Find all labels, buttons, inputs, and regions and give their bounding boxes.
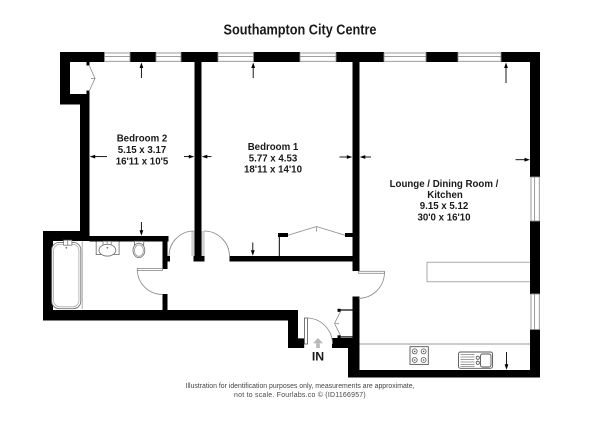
svg-text:9.15 x 5.12: 9.15 x 5.12	[420, 201, 468, 212]
svg-text:Southampton City Centre: Southampton City Centre	[224, 23, 377, 39]
svg-text:Bedroom 2: Bedroom 2	[117, 134, 168, 145]
svg-text:Bedroom 1: Bedroom 1	[248, 142, 299, 153]
svg-text:Kitchen: Kitchen	[427, 190, 463, 201]
svg-text:18'11 x 14'10: 18'11 x 14'10	[244, 164, 302, 175]
svg-text:5.77 x 4.53: 5.77 x 4.53	[249, 153, 298, 164]
svg-text:Lounge / Dining Room /: Lounge / Dining Room /	[390, 179, 499, 190]
svg-text:Illustration for identificatio: Illustration for identification purposes…	[186, 383, 415, 390]
svg-text:30'0 x 16'10: 30'0 x 16'10	[417, 212, 470, 223]
svg-text:16'11 x 10'5: 16'11 x 10'5	[116, 156, 169, 167]
svg-text:5.15 x 3.17: 5.15 x 3.17	[118, 145, 166, 156]
svg-text:IN: IN	[312, 349, 324, 363]
svg-text:not to scale. Fourlabs.co © (I: not to scale. Fourlabs.co © (ID1166957)	[234, 391, 366, 399]
